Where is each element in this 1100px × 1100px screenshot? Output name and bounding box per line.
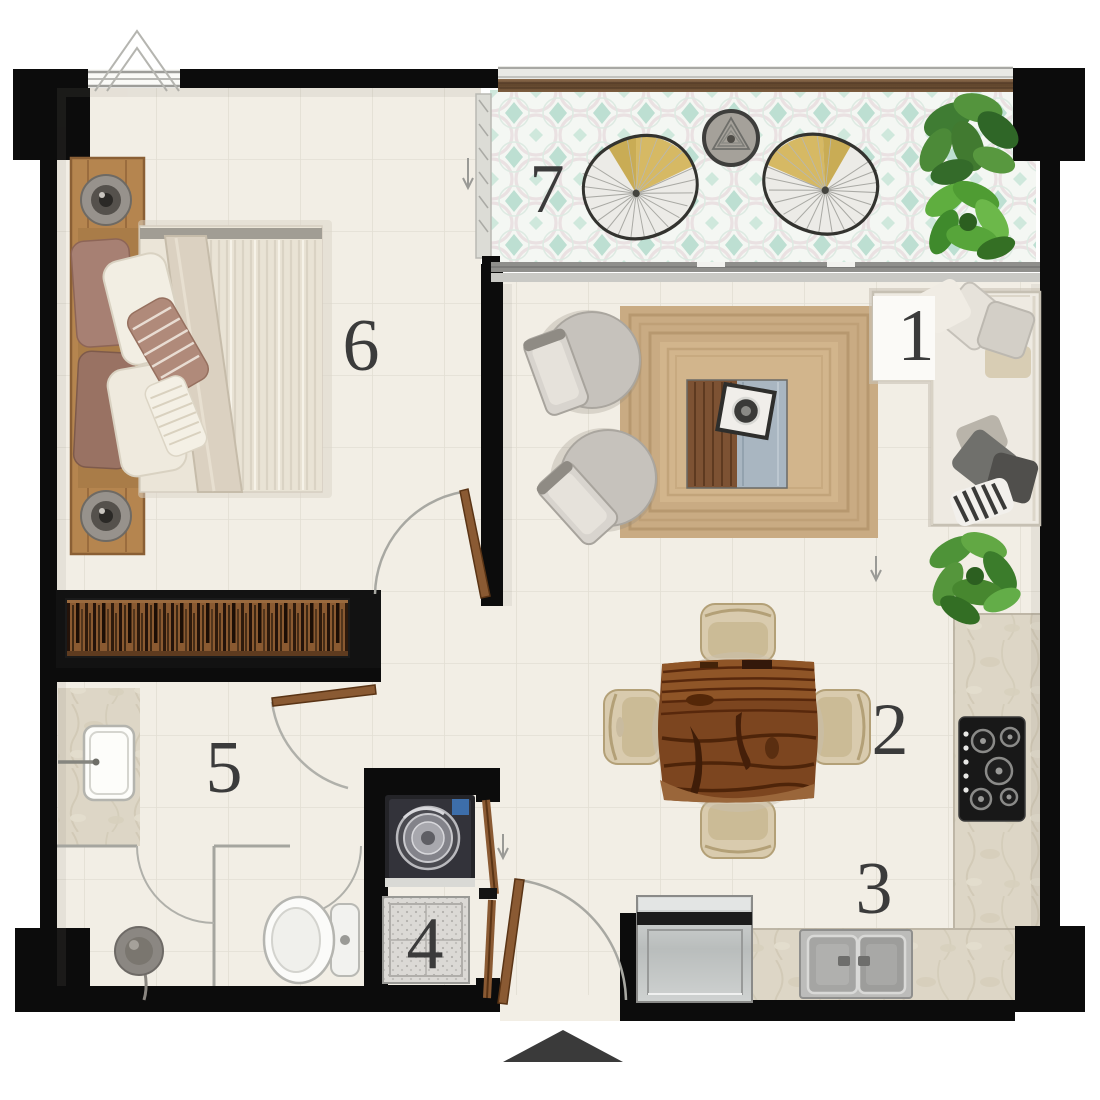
svg-text:3: 3	[856, 848, 893, 930]
svg-text:1: 1	[898, 295, 935, 377]
svg-text:4: 4	[407, 903, 444, 985]
svg-text:5: 5	[206, 727, 243, 809]
svg-text:6: 6	[343, 305, 380, 387]
svg-text:7: 7	[530, 151, 565, 228]
svg-text:2: 2	[872, 689, 909, 771]
